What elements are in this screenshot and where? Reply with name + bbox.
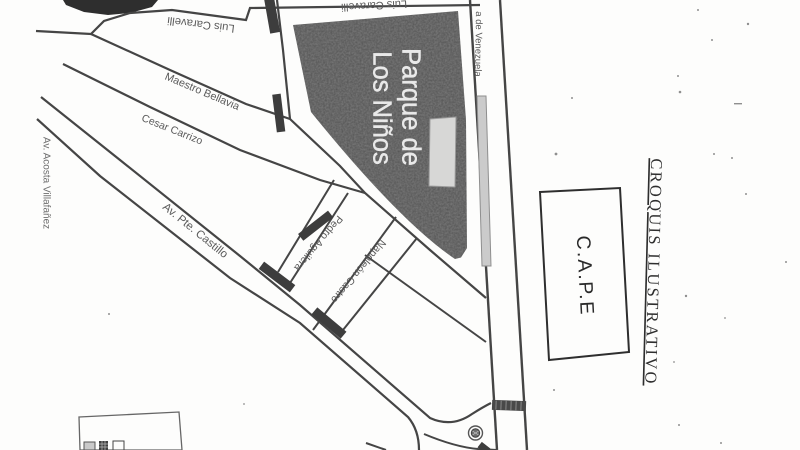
svg-text:C.A.P.E: C.A.P.E — [572, 235, 598, 317]
svg-text:a de Venezuela: a de Venezuela — [472, 11, 484, 77]
svg-text:Los Niños: Los Niños — [367, 51, 395, 164]
svg-text:Av. Acosta Villafañez: Av. Acosta Villafañez — [40, 137, 51, 229]
svg-text:Parque de: Parque de — [396, 48, 424, 166]
